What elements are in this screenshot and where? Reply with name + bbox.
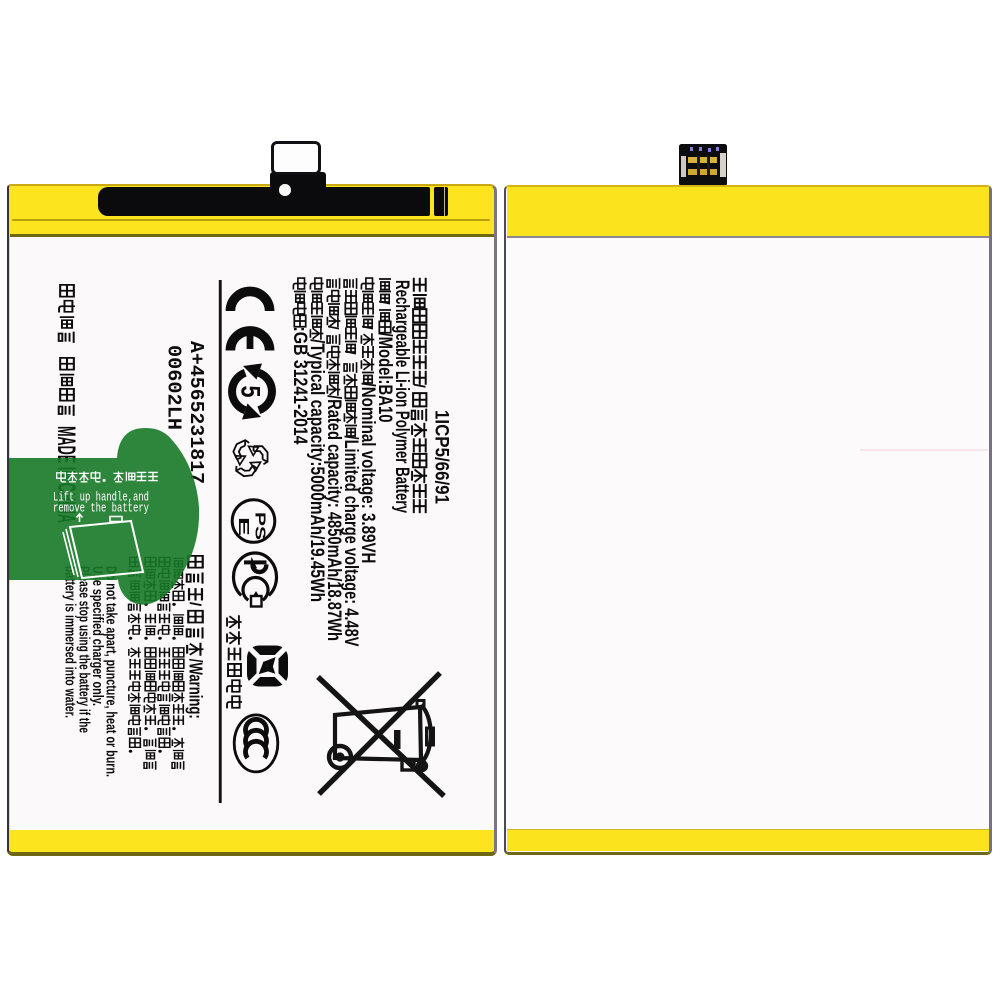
svg-text:1ICP5/66/91: 1ICP5/66/91 — [431, 410, 452, 504]
svg-text:/Warning:: /Warning: — [186, 659, 206, 719]
svg-text::GB 31241-2014: :GB 31241-2014 — [289, 327, 310, 445]
svg-text:PS: PS — [252, 512, 268, 540]
svg-text:remove the battery: remove the battery — [53, 502, 149, 516]
svg-text:/: / — [375, 301, 392, 306]
svg-text:/: / — [324, 326, 341, 331]
svg-text:/: / — [358, 326, 375, 331]
svg-text:5: 5 — [236, 386, 266, 398]
svg-text:E: E — [235, 517, 251, 537]
svg-text:/: / — [341, 351, 358, 356]
